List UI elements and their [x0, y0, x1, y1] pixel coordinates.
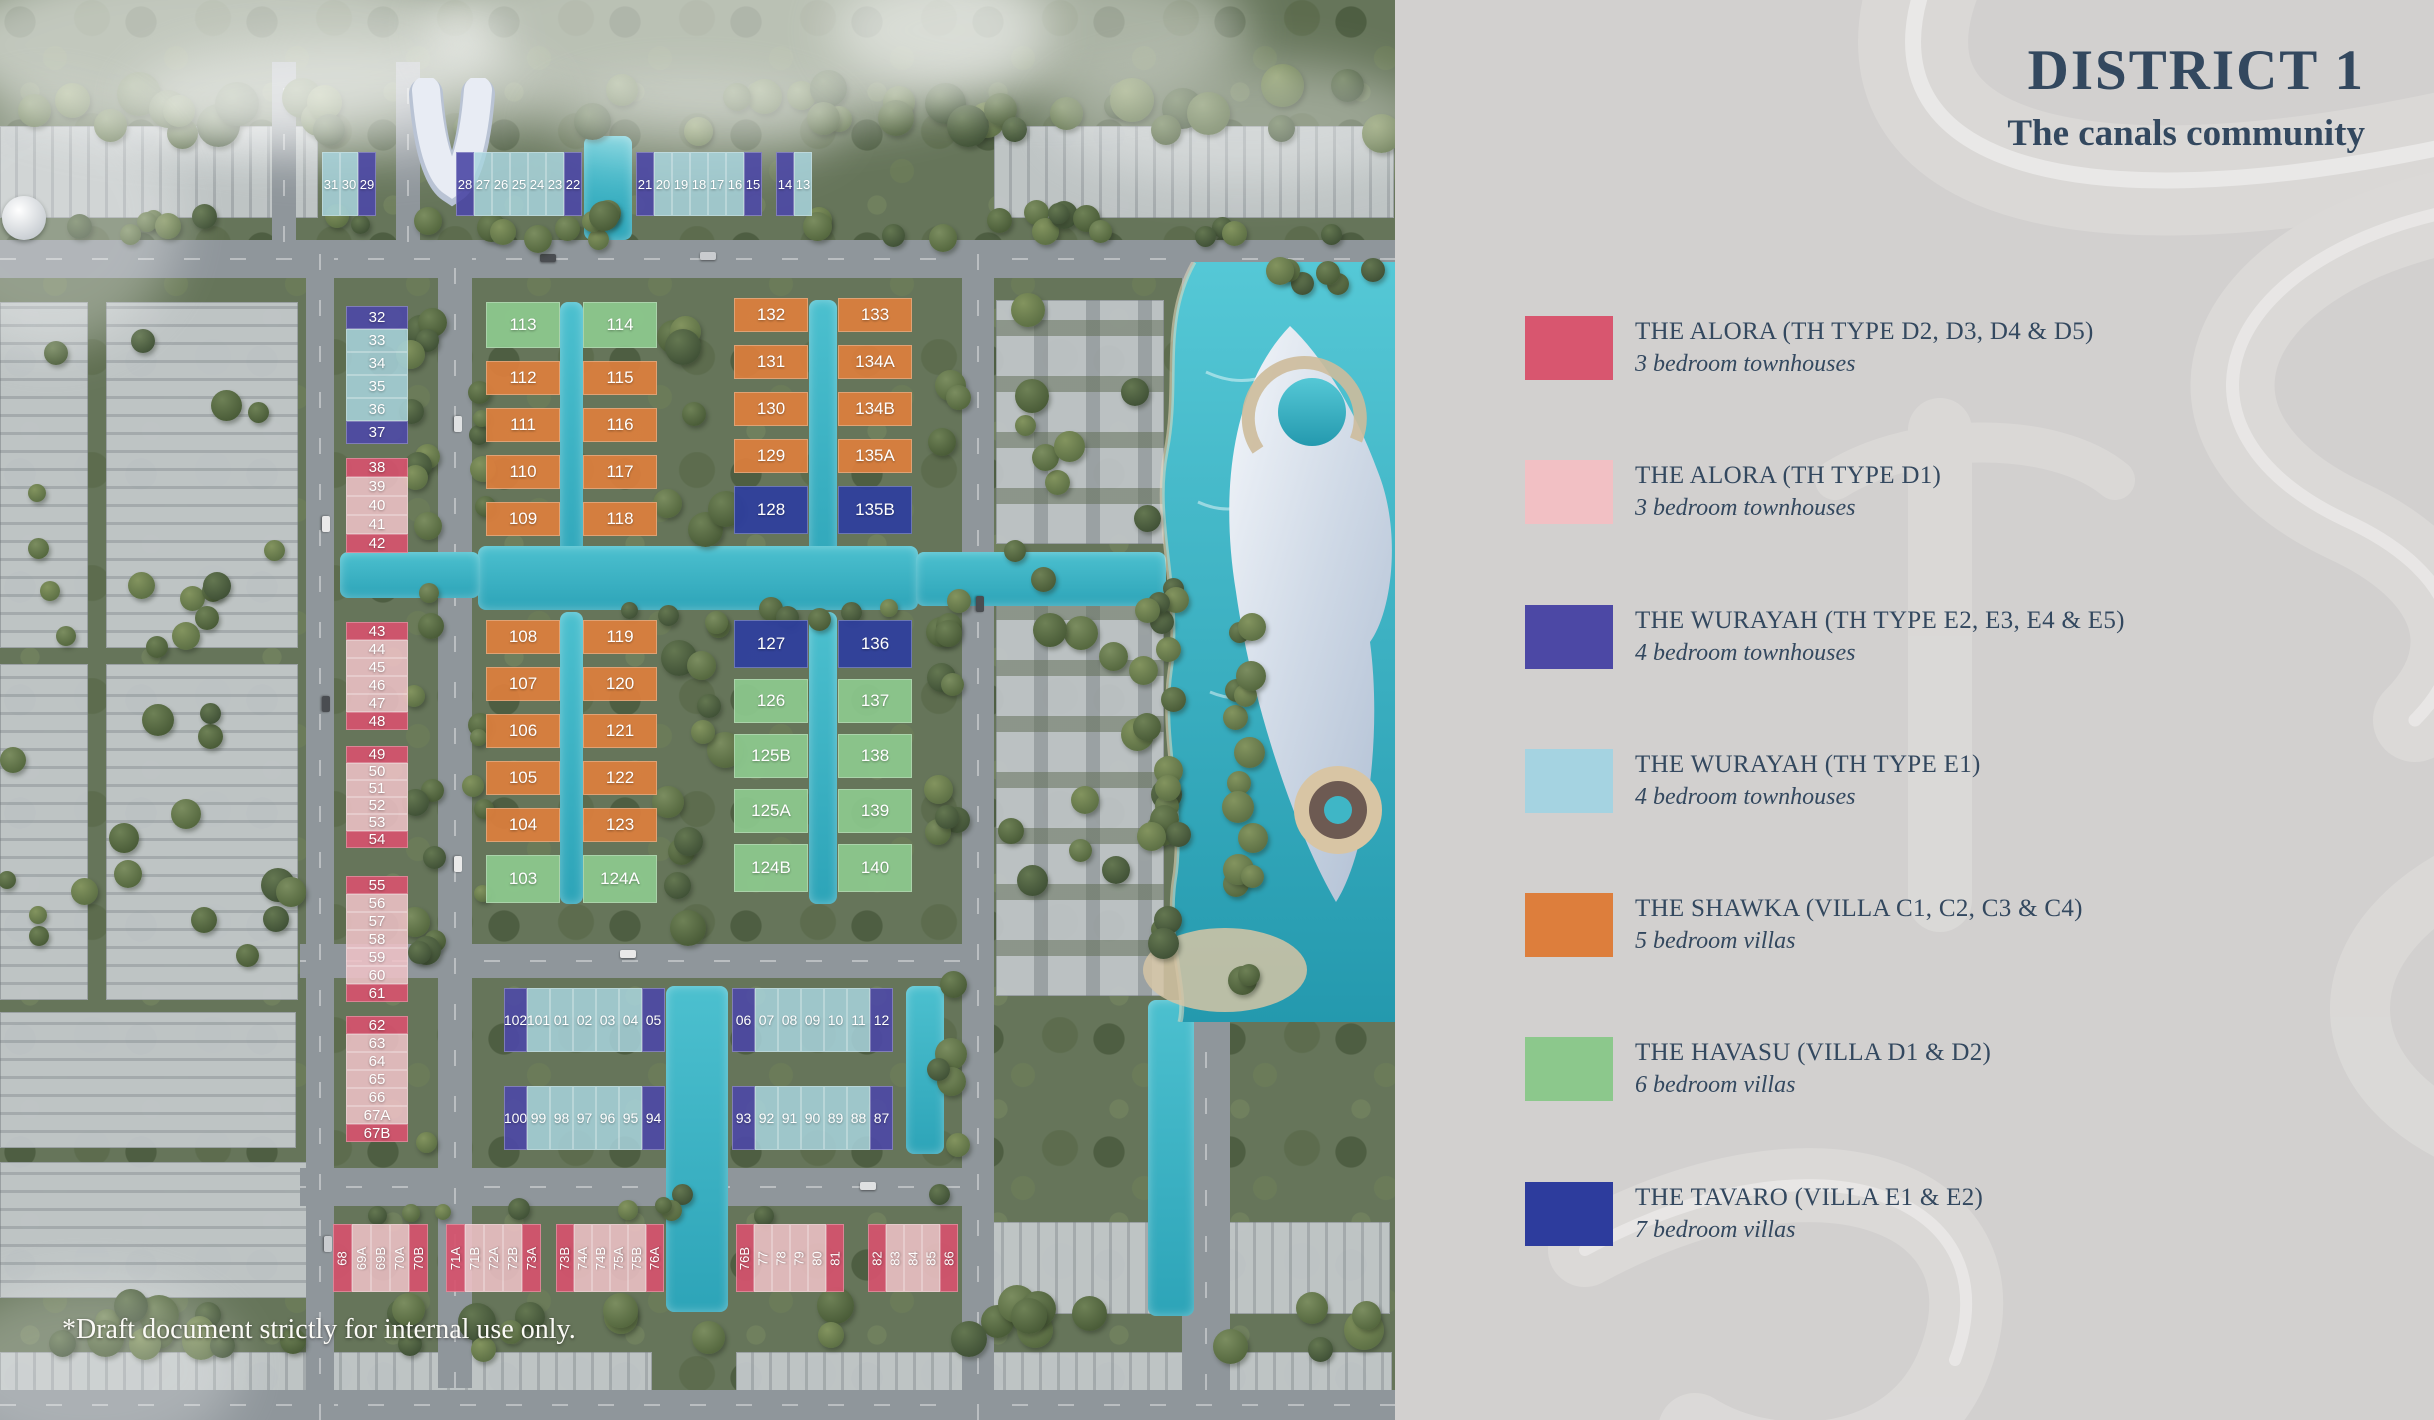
- lot-38: 38: [346, 458, 408, 477]
- lot-100: 100: [504, 1086, 527, 1150]
- tree: [28, 484, 46, 502]
- lot-75A: 75A: [610, 1224, 628, 1292]
- lot-65: 65: [346, 1070, 408, 1088]
- lot-81: 81: [826, 1224, 844, 1292]
- lot-number: 56: [369, 895, 386, 912]
- lot-58: 58: [346, 930, 408, 948]
- legend-name: THE HAVASU (VILLA D1 & D2): [1635, 1039, 1991, 1067]
- lot-number: 50: [369, 763, 386, 780]
- car: [322, 696, 330, 712]
- lot-71A: 71A: [446, 1224, 465, 1292]
- lot-39: 39: [346, 477, 408, 496]
- tree: [408, 941, 431, 964]
- tree: [264, 540, 285, 561]
- lot-number: 71B: [467, 1246, 482, 1269]
- lot-140: 140: [838, 844, 912, 892]
- lot-number: 73A: [524, 1246, 539, 1269]
- tree: [947, 589, 971, 613]
- site-map: 3130292827262524232221201918171615141332…: [0, 0, 1395, 1420]
- lot-125B: 125B: [734, 734, 808, 778]
- tree: [1238, 964, 1260, 986]
- lot-number: 33: [369, 332, 386, 349]
- lot-125A: 125A: [734, 789, 808, 833]
- lot-number: 15: [746, 177, 760, 192]
- legend-swatch-indigo: [1525, 605, 1613, 669]
- lot-35: 35: [346, 375, 408, 398]
- tree: [1072, 1296, 1107, 1331]
- lot-105: 105: [486, 761, 560, 795]
- lot-number: 83: [888, 1251, 903, 1265]
- car: [860, 1182, 876, 1190]
- tree: [947, 105, 989, 147]
- lot-77: 77: [754, 1224, 772, 1292]
- lot-group-left-3: 434445464748: [346, 622, 408, 730]
- lot-number: 35: [369, 378, 386, 395]
- lot-number: 84: [906, 1251, 921, 1265]
- tree: [941, 673, 964, 696]
- legend-name: THE ALORA (TH TYPE D2, D3, D4 & D5): [1635, 318, 2094, 346]
- lot-number: 140: [861, 858, 889, 878]
- lot-group-bot-c: 73B74A74B75A75B76A: [556, 1224, 664, 1292]
- tree: [653, 489, 682, 518]
- tree: [946, 1133, 970, 1157]
- lot-number: 13: [796, 177, 810, 192]
- lot-group-bot-d: 76B7778798081: [736, 1224, 844, 1292]
- lot-group-left-2: 3839404142: [346, 458, 408, 553]
- lot-88: 88: [847, 1086, 870, 1150]
- lot-113: 113: [486, 302, 560, 348]
- lot-number: 120: [606, 674, 634, 694]
- lot-54: 54: [346, 831, 408, 848]
- legend-text: THE ALORA (TH TYPE D2, D3, D4 & D5)3 bed…: [1635, 318, 2094, 378]
- legend-swatch-navy: [1525, 1182, 1613, 1246]
- lot-101: 101: [527, 988, 550, 1052]
- lot-06: 06: [732, 988, 755, 1052]
- lot-102: 102: [504, 988, 527, 1052]
- tree: [171, 799, 201, 829]
- tree: [1234, 737, 1265, 768]
- lot-63: 63: [346, 1034, 408, 1052]
- legend-text: THE ALORA (TH TYPE D1)3 bedroom townhous…: [1635, 462, 1941, 522]
- lot-number: 92: [759, 1110, 775, 1126]
- lot-number: 10: [828, 1012, 844, 1028]
- lot-number: 137: [861, 691, 889, 711]
- lot-group-left-4: 495051525354: [346, 746, 408, 848]
- lot-number: 136: [861, 634, 889, 654]
- legend-swatch-pink: [1525, 460, 1613, 524]
- legend-sub: 3 bedroom townhouses: [1635, 495, 1941, 522]
- lot-number: 116: [606, 415, 633, 435]
- unreleased-building-block: [0, 664, 88, 1000]
- tree: [276, 877, 306, 907]
- tree: [191, 907, 217, 933]
- lot-number: 126: [757, 691, 785, 711]
- lot-number: 20: [656, 177, 670, 192]
- lot-number: 72B: [505, 1246, 520, 1269]
- tree: [524, 225, 552, 253]
- fog-haze: [0, 1280, 240, 1420]
- lot-number: 119: [606, 627, 633, 647]
- lot-73A: 73A: [522, 1224, 541, 1292]
- lot-number: 58: [369, 931, 386, 948]
- lot-87: 87: [870, 1086, 893, 1150]
- lot-number: 74B: [594, 1246, 609, 1269]
- tree: [1155, 775, 1181, 801]
- lot-number: 129: [757, 446, 785, 466]
- road: [300, 1168, 982, 1206]
- tree: [1222, 221, 1247, 246]
- lot-75B: 75B: [628, 1224, 646, 1292]
- car: [454, 856, 462, 872]
- lot-number: 43: [369, 623, 386, 640]
- tree: [951, 1321, 987, 1357]
- lot-number: 22: [566, 177, 580, 192]
- lot-number: 26: [494, 177, 508, 192]
- tree: [56, 626, 76, 646]
- lot-33: 33: [346, 329, 408, 352]
- tree: [462, 775, 484, 797]
- tree: [808, 608, 831, 631]
- tree: [435, 1204, 451, 1220]
- lot-number: 86: [942, 1251, 957, 1265]
- lot-number: 139: [861, 801, 889, 821]
- lot-05: 05: [642, 988, 665, 1052]
- tree: [1222, 791, 1254, 823]
- legend-sub: 5 bedroom villas: [1635, 928, 2083, 955]
- lot-number: 113: [509, 315, 536, 335]
- lot-139: 139: [838, 789, 912, 833]
- lot-number: 90: [805, 1110, 821, 1126]
- lot-number: 39: [369, 478, 386, 495]
- tree: [1033, 613, 1067, 647]
- tree: [351, 215, 370, 234]
- lot-136: 136: [838, 620, 912, 668]
- lot-number: 102: [504, 1012, 527, 1028]
- lot-number: 74A: [576, 1246, 591, 1269]
- unreleased-building-block: [0, 1012, 296, 1148]
- tree: [817, 1287, 854, 1324]
- lot-137: 137: [838, 679, 912, 723]
- tree: [924, 775, 953, 804]
- tree: [195, 606, 219, 630]
- lot-114: 114: [583, 302, 657, 348]
- lot-119: 119: [583, 620, 657, 654]
- lot-group-mid-1l: 1021010102030405: [504, 988, 665, 1052]
- lot-number: 59: [369, 949, 386, 966]
- lot-group-top-a: 313029: [322, 152, 376, 216]
- lot-number: 108: [509, 627, 537, 647]
- legend-swatch-crimson: [1525, 316, 1613, 380]
- lot-41: 41: [346, 515, 408, 534]
- canal: [478, 546, 918, 610]
- lot-61: 61: [346, 984, 408, 1002]
- lot-73B: 73B: [556, 1224, 574, 1292]
- legend-text: THE WURAYAH (TH TYPE E2, E3, E4 & E5)4 b…: [1635, 607, 2125, 667]
- lot-number: 75A: [612, 1246, 627, 1269]
- tree: [192, 204, 217, 229]
- tree: [368, 1206, 387, 1225]
- tree: [1129, 656, 1158, 685]
- car: [322, 516, 330, 532]
- tree: [618, 1200, 638, 1220]
- tree: [1134, 505, 1161, 532]
- lot-group-top-c: 21201918171615: [636, 152, 762, 216]
- lot-94: 94: [642, 1086, 665, 1150]
- lot-25: 25: [510, 152, 528, 216]
- lot-number: 75B: [630, 1246, 645, 1269]
- tree: [682, 402, 706, 426]
- lot-72B: 72B: [503, 1224, 522, 1292]
- lot-number: 65: [369, 1071, 386, 1088]
- lot-134B: 134B: [838, 392, 912, 426]
- tree: [1213, 1329, 1248, 1364]
- lot-70A: 70A: [390, 1224, 409, 1292]
- tree: [1011, 1298, 1047, 1334]
- car: [324, 1236, 332, 1252]
- tree: [423, 846, 446, 869]
- tree: [1241, 865, 1264, 888]
- legend-entry-indigo: THE WURAYAH (TH TYPE E2, E3, E4 & E5)4 b…: [1525, 605, 2125, 669]
- legend-name: THE WURAYAH (TH TYPE E1): [1635, 751, 1981, 779]
- unreleased-building-block: [0, 1162, 316, 1298]
- lot-number: 57: [369, 913, 386, 930]
- lot-121: 121: [583, 714, 657, 748]
- lot-43: 43: [346, 622, 408, 640]
- lot-26: 26: [492, 152, 510, 216]
- legend-sub: 6 bedroom villas: [1635, 1072, 1991, 1099]
- tree: [198, 724, 223, 749]
- car: [540, 254, 556, 262]
- lot-number: 16: [728, 177, 742, 192]
- tree: [28, 538, 49, 559]
- lot-number: 06: [736, 1012, 752, 1028]
- lot-group-villa-2b: 133134A134B135A135B: [838, 298, 912, 534]
- tree: [146, 636, 168, 658]
- tree: [29, 926, 49, 946]
- lot-116: 116: [583, 408, 657, 442]
- lot-number: 36: [369, 401, 386, 418]
- lot-17: 17: [708, 152, 726, 216]
- lot-number: 73B: [558, 1246, 573, 1269]
- lot-number: 115: [606, 368, 633, 388]
- tree: [1089, 220, 1112, 243]
- tree: [1238, 613, 1266, 641]
- lot-number: 45: [369, 659, 386, 676]
- legend-entry-crimson: THE ALORA (TH TYPE D2, D3, D4 & D5)3 bed…: [1525, 316, 2094, 380]
- lot-67A: 67A: [346, 1106, 408, 1124]
- lot-number: 96: [600, 1110, 616, 1126]
- lot-93: 93: [732, 1086, 755, 1150]
- sculpture-courtyard: [1278, 378, 1346, 446]
- tree: [1002, 117, 1027, 142]
- lot-46: 46: [346, 676, 408, 694]
- tree: [882, 224, 905, 247]
- lot-number: 81: [828, 1251, 843, 1265]
- lot-group-left-5: 55565758596061: [346, 876, 408, 1002]
- tree: [705, 611, 728, 634]
- lot-number: 103: [509, 869, 537, 889]
- lot-66: 66: [346, 1088, 408, 1106]
- lot-number: 70A: [392, 1246, 407, 1269]
- tree: [0, 747, 26, 773]
- tree: [664, 872, 691, 899]
- lot-number: 54: [369, 831, 386, 848]
- tree: [589, 201, 619, 231]
- tree: [1321, 224, 1342, 245]
- tree: [236, 944, 259, 967]
- lot-number: 135B: [855, 500, 895, 520]
- tree: [1308, 1337, 1333, 1362]
- tree: [1166, 822, 1191, 847]
- lot-number: 53: [369, 814, 386, 831]
- lot-83: 83: [886, 1224, 904, 1292]
- lot-21: 21: [636, 152, 654, 216]
- tree: [1048, 203, 1069, 224]
- lot-95: 95: [619, 1086, 642, 1150]
- lot-group-top-d: 1413: [776, 152, 812, 216]
- car: [454, 416, 462, 432]
- tree: [1296, 1292, 1328, 1324]
- tree: [1148, 928, 1179, 959]
- lot-number: 61: [369, 985, 386, 1002]
- legend-text: THE SHAWKA (VILLA C1, C2, C3 & C4)5 bedr…: [1635, 895, 2083, 955]
- road: [962, 240, 994, 1420]
- lot-23: 23: [546, 152, 564, 216]
- lot-103: 103: [486, 855, 560, 903]
- lot-number: 48: [369, 713, 386, 730]
- lot-number: 88: [851, 1110, 867, 1126]
- lot-92: 92: [755, 1086, 778, 1150]
- lot-number: 55: [369, 877, 386, 894]
- tree: [71, 878, 98, 905]
- lot-134A: 134A: [838, 345, 912, 379]
- legend-text: THE HAVASU (VILLA D1 & D2)6 bedroom vill…: [1635, 1039, 1991, 1099]
- tree: [674, 827, 703, 856]
- lot-number: 51: [369, 780, 386, 797]
- lot-45: 45: [346, 658, 408, 676]
- lot-number: 38: [369, 459, 386, 476]
- tree: [670, 910, 706, 946]
- tree: [200, 703, 221, 724]
- lot-number: 11: [851, 1012, 866, 1028]
- lot-124A: 124A: [583, 855, 657, 903]
- lot-132: 132: [734, 298, 808, 332]
- lot-48: 48: [346, 712, 408, 730]
- tree: [929, 1184, 950, 1205]
- lot-number: 14: [778, 177, 792, 192]
- lot-number: 95: [623, 1110, 639, 1126]
- tree: [621, 602, 638, 619]
- tree: [1031, 567, 1056, 592]
- lot-110: 110: [486, 455, 560, 489]
- lot-109: 109: [486, 502, 560, 536]
- lot-09: 09: [801, 988, 824, 1052]
- legend-text: THE WURAYAH (TH TYPE E1)4 bedroom townho…: [1635, 751, 1981, 811]
- tree: [1054, 431, 1085, 462]
- lot-30: 30: [340, 152, 358, 216]
- lot-number: 42: [369, 535, 386, 552]
- tree: [928, 428, 956, 456]
- lot-number: 105: [509, 768, 537, 788]
- tree: [1069, 839, 1092, 862]
- lot-number: 72A: [486, 1246, 501, 1269]
- lot-115: 115: [583, 361, 657, 395]
- lot-22: 22: [564, 152, 582, 216]
- lot-69B: 69B: [371, 1224, 390, 1292]
- lot-number: 30: [342, 177, 356, 192]
- lot-24: 24: [528, 152, 546, 216]
- lot-number: 104: [509, 815, 537, 835]
- lot-number: 41: [369, 516, 386, 533]
- lot-number: 134A: [855, 352, 895, 372]
- lot-number: 76B: [738, 1246, 753, 1269]
- lot-number: 125B: [751, 746, 791, 766]
- lot-number: 64: [369, 1053, 386, 1070]
- lot-29: 29: [358, 152, 376, 216]
- lot-number: 138: [861, 746, 889, 766]
- page-title: DISTRICT 1: [2028, 38, 2365, 103]
- lot-number: 101: [527, 1012, 550, 1028]
- lot-number: 124B: [751, 858, 791, 878]
- lot-number: 07: [759, 1012, 775, 1028]
- lot-number: 121: [606, 721, 634, 741]
- car: [976, 596, 984, 612]
- lot-number: 28: [458, 177, 472, 192]
- tree: [665, 329, 701, 365]
- lot-number: 80: [810, 1251, 825, 1265]
- lot-number: 67A: [364, 1107, 391, 1124]
- lot-74B: 74B: [592, 1224, 610, 1292]
- lot-91: 91: [778, 1086, 801, 1150]
- legend-sub: 3 bedroom townhouses: [1635, 351, 2094, 378]
- tree: [1071, 786, 1099, 814]
- lot-number: 62: [369, 1017, 386, 1034]
- tree: [128, 572, 155, 599]
- legend-name: THE TAVARO (VILLA E1 & E2): [1635, 1184, 1983, 1212]
- tree: [697, 694, 721, 718]
- lot-128: 128: [734, 486, 808, 534]
- tree: [946, 385, 971, 410]
- tree: [1195, 226, 1216, 247]
- lot-71B: 71B: [465, 1224, 484, 1292]
- lot-number: 19: [674, 177, 688, 192]
- lot-76A: 76A: [646, 1224, 664, 1292]
- lot-40: 40: [346, 496, 408, 515]
- tree: [1017, 865, 1048, 896]
- tree: [414, 512, 442, 540]
- lot-122: 122: [583, 761, 657, 795]
- lot-112: 112: [486, 361, 560, 395]
- lot-number: 106: [509, 721, 537, 741]
- lot-number: 124A: [600, 869, 640, 889]
- lot-118: 118: [583, 502, 657, 536]
- lot-number: 132: [757, 305, 785, 325]
- lot-number: 109: [509, 509, 537, 529]
- lot-70B: 70B: [409, 1224, 428, 1292]
- tree: [692, 1321, 725, 1354]
- lot-50: 50: [346, 763, 408, 780]
- lot-group-left-6: 626364656667A67B: [346, 1016, 408, 1142]
- lot-number: 79: [792, 1251, 807, 1265]
- tree: [263, 906, 289, 932]
- lot-59: 59: [346, 948, 408, 966]
- lot-number: 125A: [751, 801, 791, 821]
- lot-number: 17: [710, 177, 724, 192]
- lot-number: 122: [606, 768, 634, 788]
- lot-number: 40: [369, 497, 386, 514]
- lot-number: 114: [606, 315, 633, 335]
- tree: [691, 720, 715, 744]
